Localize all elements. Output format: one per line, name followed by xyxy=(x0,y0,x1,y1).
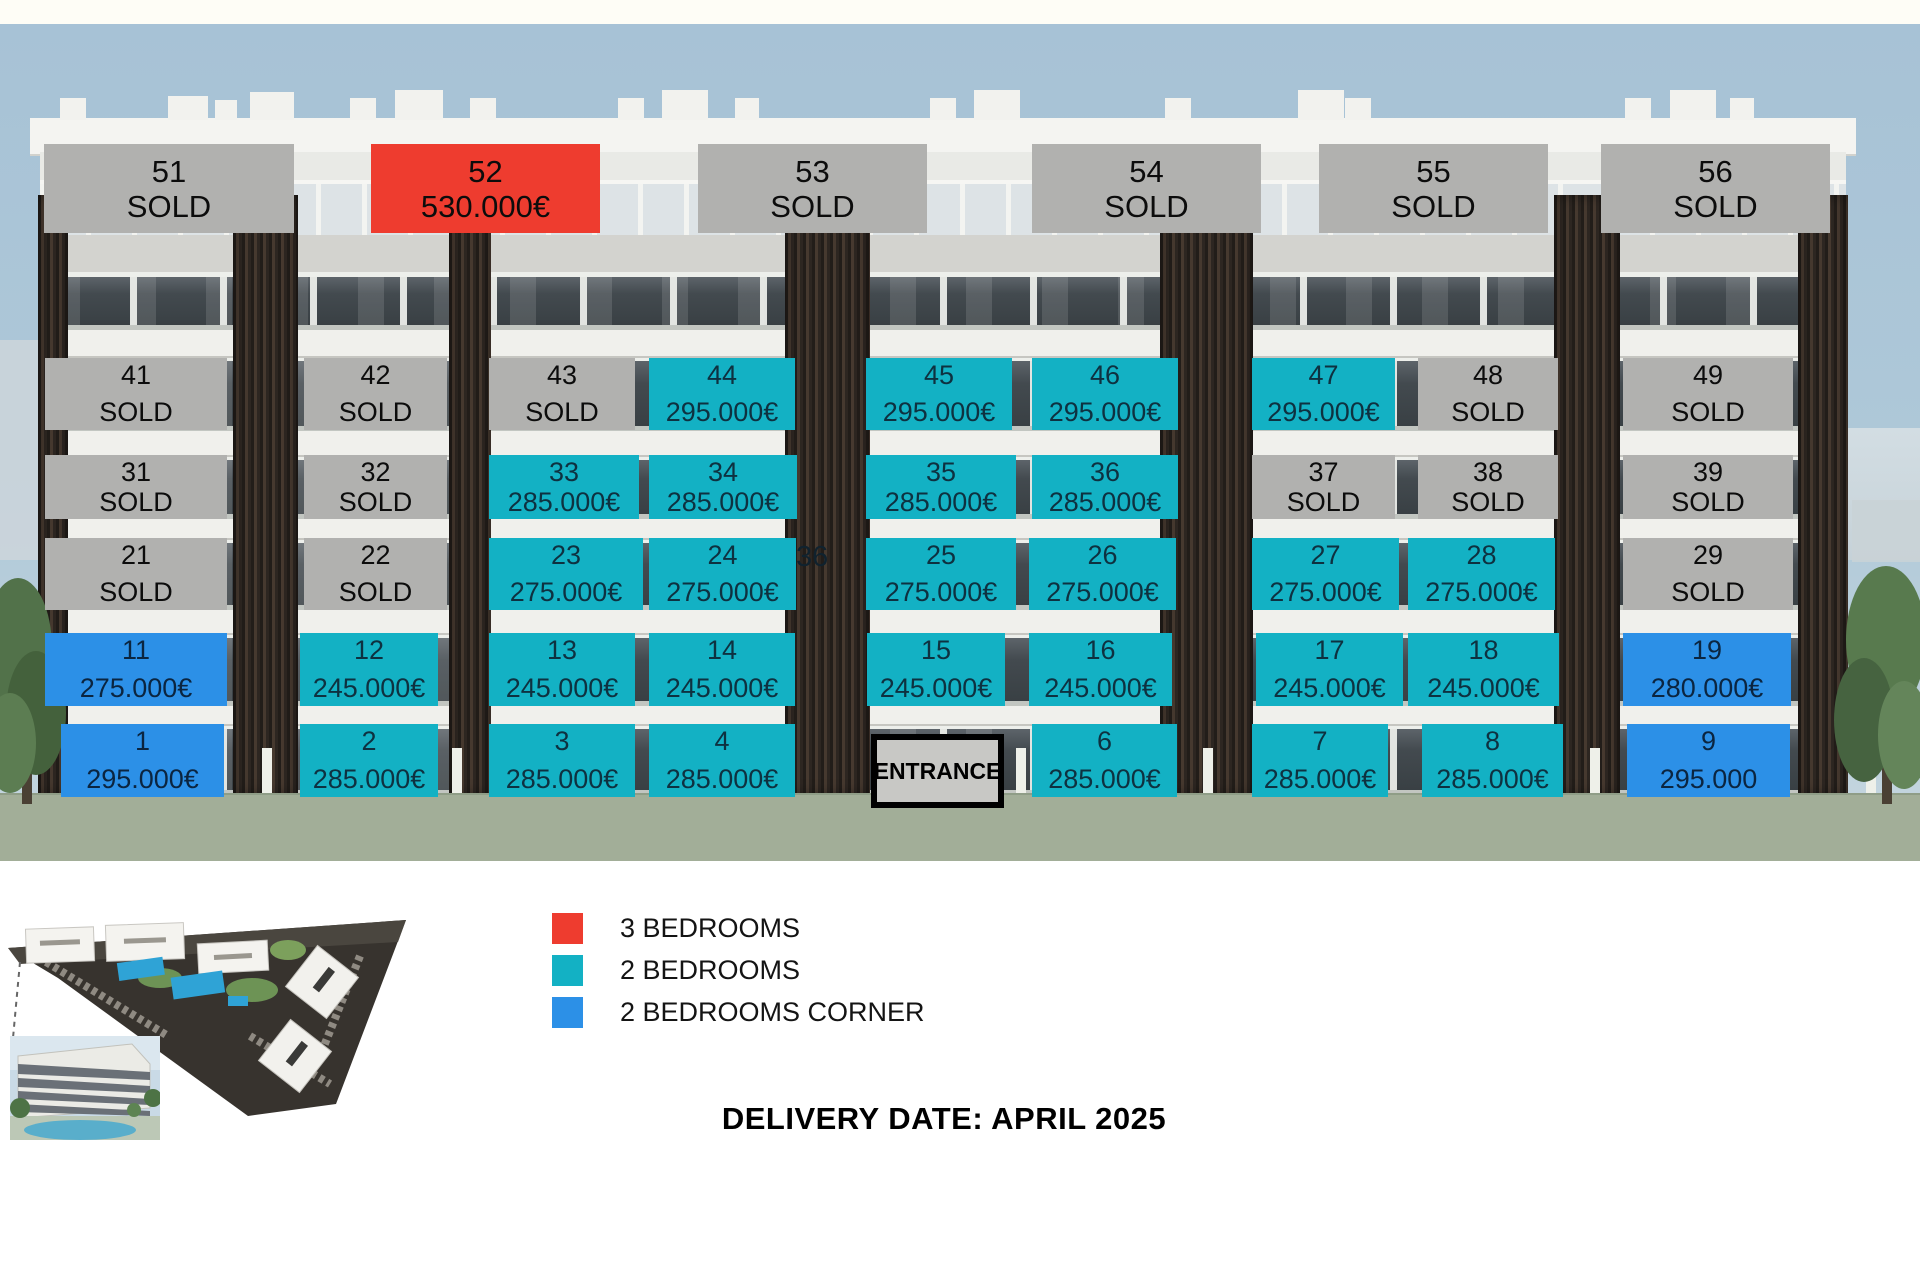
unit-number: 25 xyxy=(926,541,956,571)
unit-box-37: 37SOLD xyxy=(1252,455,1395,519)
unit-price-or-status: 245.000€ xyxy=(1427,674,1540,704)
entrance-sign: ENTRANCE xyxy=(871,734,1004,808)
unit-box-13: 13245.000€ xyxy=(489,633,635,706)
unit-box-9: 9295.000 xyxy=(1627,724,1790,797)
unit-number: 22 xyxy=(360,541,390,571)
chimney-decor xyxy=(215,100,237,120)
unit-number: 43 xyxy=(547,361,577,391)
unit-number: 19 xyxy=(1692,636,1722,666)
floating-unit-number: 36 xyxy=(796,541,828,574)
unit-price-or-status: 245.000€ xyxy=(506,674,619,704)
unit-number: 42 xyxy=(360,361,390,391)
chimney-decor xyxy=(1345,98,1371,120)
unit-box-15: 15245.000€ xyxy=(867,633,1005,706)
tree-right xyxy=(1834,520,1920,804)
unit-box-21: 21SOLD xyxy=(45,538,227,610)
unit-number: 12 xyxy=(354,636,384,666)
unit-box-47: 47295.000€ xyxy=(1252,358,1395,430)
unit-number: 3 xyxy=(554,727,569,757)
unit-box-29: 29SOLD xyxy=(1623,538,1793,610)
unit-price-or-status: SOLD xyxy=(339,488,413,518)
chimney-decor xyxy=(974,90,1020,120)
unit-number: 27 xyxy=(1310,541,1340,571)
unit-number: 28 xyxy=(1466,541,1496,571)
unit-box-53: 53SOLD xyxy=(698,144,927,233)
unit-number: 17 xyxy=(1314,636,1344,666)
unit-price-or-status: 295.000€ xyxy=(1267,398,1380,428)
unit-price-or-status: SOLD xyxy=(1391,190,1475,224)
unit-price-or-status: 275.000€ xyxy=(1269,578,1382,608)
legend-label: 3 BEDROOMS xyxy=(620,913,800,944)
unit-number: 18 xyxy=(1468,636,1498,666)
delivery-date-text: DELIVERY DATE: APRIL 2025 xyxy=(544,1101,1344,1137)
unit-box-23: 23275.000€ xyxy=(489,538,643,610)
unit-box-19: 19280.000€ xyxy=(1623,633,1791,706)
chimney-decor xyxy=(1165,98,1191,120)
chimney-decor xyxy=(1625,98,1651,120)
unit-box-41: 41SOLD xyxy=(45,358,227,430)
chimney-decor xyxy=(60,98,86,120)
unit-price-or-status: 285.000€ xyxy=(1048,765,1161,795)
gpost-decor xyxy=(1016,748,1026,796)
unit-number: 44 xyxy=(707,361,737,391)
chimney-decor xyxy=(618,98,644,120)
unit-price-or-status: SOLD xyxy=(1671,488,1745,518)
unit-price-or-status: 295.000€ xyxy=(86,765,199,795)
unit-box-52: 52530.000€ xyxy=(371,144,600,233)
unit-price-or-status: SOLD xyxy=(1104,190,1188,224)
unit-number: 56 xyxy=(1698,155,1732,189)
unit-price-or-status: 275.000€ xyxy=(1046,578,1159,608)
top-white-strip xyxy=(0,0,1920,26)
pillar-decor xyxy=(449,195,491,795)
unit-price-or-status: 245.000€ xyxy=(1273,674,1386,704)
pillar-decor xyxy=(233,195,298,795)
unit-price-or-status: SOLD xyxy=(99,398,173,428)
unit-box-33: 33285.000€ xyxy=(489,455,639,519)
unit-number: 38 xyxy=(1473,458,1503,488)
unit-price-or-status: SOLD xyxy=(127,190,211,224)
unit-number: 8 xyxy=(1485,727,1500,757)
unit-box-17: 17245.000€ xyxy=(1256,633,1403,706)
unit-box-42: 42SOLD xyxy=(304,358,447,430)
unit-box-24: 24275.000€ xyxy=(649,538,796,610)
unit-price-or-status: SOLD xyxy=(339,398,413,428)
chimney-decor xyxy=(168,96,208,120)
unit-price-or-status: 530.000€ xyxy=(421,190,550,224)
unit-price-or-status: 295.000€ xyxy=(666,398,779,428)
unit-price-or-status: 275.000€ xyxy=(885,578,998,608)
unit-number: 29 xyxy=(1693,541,1723,571)
unit-number: 33 xyxy=(549,458,579,488)
unit-price-or-status: 285.000€ xyxy=(1436,765,1549,795)
unit-number: 7 xyxy=(1312,727,1327,757)
unit-price-or-status: 295.000 xyxy=(1660,765,1758,795)
pillar-decor xyxy=(785,195,870,795)
unit-price-or-status: 280.000€ xyxy=(1651,674,1764,704)
unit-price-or-status: SOLD xyxy=(525,398,599,428)
unit-number: 2 xyxy=(361,727,376,757)
unit-box-32: 32SOLD xyxy=(304,455,447,519)
unit-number: 13 xyxy=(547,636,577,666)
unit-number: 14 xyxy=(707,636,737,666)
unit-price-or-status: 285.000€ xyxy=(506,765,619,795)
unit-number: 9 xyxy=(1701,727,1716,757)
unit-box-39: 39SOLD xyxy=(1623,455,1793,519)
unit-number: 36 xyxy=(1090,458,1120,488)
unit-box-7: 7285.000€ xyxy=(1252,724,1388,797)
unit-price-or-status: SOLD xyxy=(339,578,413,608)
unit-box-44: 44295.000€ xyxy=(649,358,795,430)
unit-box-26: 26275.000€ xyxy=(1029,538,1176,610)
unit-number: 39 xyxy=(1693,458,1723,488)
chimney-decor xyxy=(250,92,294,120)
unit-box-55: 55SOLD xyxy=(1319,144,1548,233)
unit-price-or-status: SOLD xyxy=(1451,488,1525,518)
legend-item-1: 3 BEDROOMS xyxy=(552,913,925,944)
chimney-decor xyxy=(930,98,956,120)
unit-price-or-status: 275.000€ xyxy=(666,578,779,608)
unit-price-or-status: SOLD xyxy=(1673,190,1757,224)
unit-number: 4 xyxy=(714,727,729,757)
unit-number: 37 xyxy=(1308,458,1338,488)
unit-box-28: 28275.000€ xyxy=(1408,538,1555,610)
unit-number: 21 xyxy=(121,541,151,571)
building-render-thumbnail xyxy=(10,1036,160,1140)
unit-price-or-status: SOLD xyxy=(1671,578,1745,608)
unit-price-or-status: 275.000€ xyxy=(510,578,623,608)
unit-number: 46 xyxy=(1090,361,1120,391)
unit-price-or-status: SOLD xyxy=(1671,398,1745,428)
unit-number: 48 xyxy=(1473,361,1503,391)
unit-number: 35 xyxy=(926,458,956,488)
gpost-decor xyxy=(452,748,462,796)
legend-label: 2 BEDROOMS xyxy=(620,955,800,986)
unit-price-or-status: 295.000€ xyxy=(1049,398,1162,428)
gpost-decor xyxy=(1203,748,1213,796)
unit-box-11: 11275.000€ xyxy=(45,633,227,706)
legend-swatch-icon xyxy=(552,997,583,1028)
legend: 3 BEDROOMS2 BEDROOMS2 BEDROOMS CORNER xyxy=(552,913,925,1039)
unit-box-2: 2285.000€ xyxy=(300,724,438,797)
unit-box-3: 3285.000€ xyxy=(489,724,635,797)
unit-box-36: 36285.000€ xyxy=(1032,455,1178,519)
unit-number: 26 xyxy=(1087,541,1117,571)
unit-box-46: 46295.000€ xyxy=(1032,358,1178,430)
unit-price-or-status: 245.000€ xyxy=(880,674,993,704)
unit-number: 52 xyxy=(468,155,502,189)
unit-number: 51 xyxy=(152,155,186,189)
unit-price-or-status: SOLD xyxy=(1287,488,1361,518)
unit-box-22: 22SOLD xyxy=(304,538,447,610)
gpost-decor xyxy=(262,748,272,796)
unit-price-or-status: 245.000€ xyxy=(313,674,426,704)
unit-price-or-status: 285.000€ xyxy=(1264,765,1377,795)
chimney-decor xyxy=(350,98,376,120)
unit-box-43: 43SOLD xyxy=(489,358,635,430)
unit-box-35: 35285.000€ xyxy=(866,455,1016,519)
legend-label: 2 BEDROOMS CORNER xyxy=(620,997,925,1028)
unit-box-4: 4285.000€ xyxy=(649,724,795,797)
unit-price-or-status: 245.000€ xyxy=(666,674,779,704)
unit-price-or-status: 285.000€ xyxy=(666,765,779,795)
flyer-canvas: 51SOLD52530.000€53SOLD54SOLD55SOLD56SOLD… xyxy=(0,0,1920,1280)
unit-price-or-status: 285.000€ xyxy=(313,765,426,795)
unit-number: 16 xyxy=(1085,636,1115,666)
legend-swatch-icon xyxy=(552,955,583,986)
unit-box-54: 54SOLD xyxy=(1032,144,1261,233)
unit-box-56: 56SOLD xyxy=(1601,144,1830,233)
chimney-decor xyxy=(735,98,759,120)
unit-box-1: 1295.000€ xyxy=(61,724,224,797)
unit-number: 23 xyxy=(551,541,581,571)
unit-box-6: 6285.000€ xyxy=(1032,724,1177,797)
unit-box-49: 49SOLD xyxy=(1623,358,1793,430)
unit-number: 1 xyxy=(135,727,150,757)
unit-number: 45 xyxy=(924,361,954,391)
unit-box-27: 27275.000€ xyxy=(1252,538,1399,610)
unit-number: 34 xyxy=(708,458,738,488)
unit-price-or-status: SOLD xyxy=(99,488,173,518)
unit-box-34: 34285.000€ xyxy=(649,455,797,519)
building-parapet xyxy=(30,118,1856,156)
distant-wall-left xyxy=(0,340,38,560)
legend-item-2: 2 BEDROOMS xyxy=(552,955,925,986)
unit-number: 6 xyxy=(1097,727,1112,757)
unit-box-45: 45295.000€ xyxy=(866,358,1012,430)
pillar-decor xyxy=(1554,195,1620,795)
legend-item-3: 2 BEDROOMS CORNER xyxy=(552,997,925,1028)
unit-number: 49 xyxy=(1693,361,1723,391)
chimney-decor xyxy=(1670,90,1716,120)
unit-number: 24 xyxy=(707,541,737,571)
unit-number: 31 xyxy=(121,458,151,488)
unit-price-or-status: 285.000€ xyxy=(667,488,780,518)
unit-box-48: 48SOLD xyxy=(1418,358,1558,430)
chimney-decor xyxy=(1298,90,1344,120)
unit-price-or-status: SOLD xyxy=(1451,398,1525,428)
unit-number: 32 xyxy=(360,458,390,488)
unit-box-16: 16245.000€ xyxy=(1029,633,1172,706)
unit-price-or-status: 285.000€ xyxy=(508,488,621,518)
unit-number: 15 xyxy=(921,636,951,666)
unit-number: 55 xyxy=(1416,155,1450,189)
unit-box-12: 12245.000€ xyxy=(300,633,438,706)
unit-number: 53 xyxy=(795,155,829,189)
unit-number: 41 xyxy=(121,361,151,391)
unit-price-or-status: 285.000€ xyxy=(885,488,998,518)
unit-price-or-status: 245.000€ xyxy=(1044,674,1157,704)
unit-box-38: 38SOLD xyxy=(1418,455,1558,519)
unit-box-51: 51SOLD xyxy=(44,144,294,233)
unit-box-18: 18245.000€ xyxy=(1408,633,1559,706)
unit-box-14: 14245.000€ xyxy=(649,633,795,706)
legend-swatch-icon xyxy=(552,913,583,944)
unit-price-or-status: SOLD xyxy=(99,578,173,608)
unit-price-or-status: SOLD xyxy=(770,190,854,224)
unit-price-or-status: 275.000€ xyxy=(80,674,193,704)
unit-box-8: 8285.000€ xyxy=(1422,724,1563,797)
unit-price-or-status: 295.000€ xyxy=(883,398,996,428)
chimney-decor xyxy=(1730,98,1754,120)
unit-price-or-status: 275.000€ xyxy=(1425,578,1538,608)
chimney-decor xyxy=(470,98,496,120)
unit-box-25: 25275.000€ xyxy=(866,538,1016,610)
unit-number: 54 xyxy=(1129,155,1163,189)
unit-price-or-status: 285.000€ xyxy=(1049,488,1162,518)
gpost-decor xyxy=(1590,748,1600,796)
unit-number: 47 xyxy=(1308,361,1338,391)
chimney-decor xyxy=(395,90,443,120)
unit-number: 11 xyxy=(122,636,150,666)
chimney-decor xyxy=(662,90,708,120)
unit-box-31: 31SOLD xyxy=(45,455,227,519)
